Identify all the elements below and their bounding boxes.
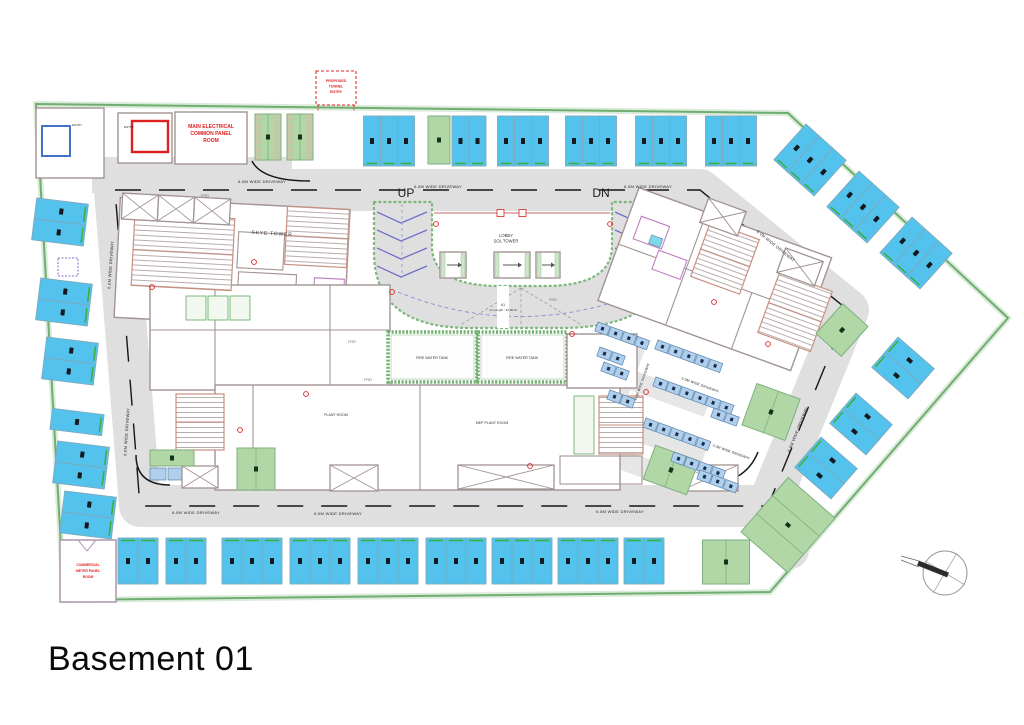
fire-tank-label: FIRE WATER TANK <box>506 356 539 360</box>
stall-number <box>338 558 342 564</box>
driveway-label: 6.0M WIDE DRIVEWAY <box>624 184 672 189</box>
stall-number <box>56 229 61 235</box>
stall-number <box>676 138 680 144</box>
parking-stall-group <box>830 393 892 455</box>
parking-stall-group <box>636 116 687 166</box>
svg-text:SOL TOWER: SOL TOWER <box>494 239 519 244</box>
stall-number <box>370 138 374 144</box>
tunnel-entry-label: PROPOSED <box>326 79 347 83</box>
stall-number <box>434 558 438 564</box>
parking-stall-group <box>364 116 415 166</box>
stall-number <box>194 558 198 564</box>
svg-text:ENTRY: ENTRY <box>330 90 343 94</box>
driveway-label-3m: 3.0M WIDE DRIVEWAY <box>712 443 751 460</box>
stall-number <box>75 419 80 425</box>
parking-stall-group <box>42 337 99 385</box>
stall-number <box>642 138 646 144</box>
stall-number <box>60 309 65 315</box>
frd-label: FRD <box>348 339 356 344</box>
stall-number <box>59 208 64 214</box>
parking-stall-group <box>774 124 846 196</box>
utility-box <box>58 258 78 276</box>
plant-room-label: PLANT ROOM <box>324 413 348 417</box>
stall-number <box>250 558 254 564</box>
north-arrow-icon <box>901 551 967 595</box>
void-box <box>458 465 554 489</box>
parking-stall-group <box>492 538 552 584</box>
ramp-dn-label: DN <box>592 186 609 200</box>
stall-number <box>170 456 174 461</box>
parking-stall-group <box>60 491 117 539</box>
stall-number <box>298 558 302 564</box>
frd-label: FRD <box>364 377 372 382</box>
stall-number <box>254 467 258 472</box>
stall-number <box>540 558 544 564</box>
stall-number <box>586 558 590 564</box>
stall-number <box>69 347 74 353</box>
driveway-label: 6.0M WIDE DRIVEWAY <box>314 511 362 516</box>
commercial-room-label: COMMERCIAL <box>76 563 99 567</box>
driveway-label: 6.0M WIDE DRIVEWAY <box>172 510 220 515</box>
stall-number <box>474 558 478 564</box>
void-box <box>193 197 230 225</box>
parking-stall-group <box>880 217 952 289</box>
parking-stall-group <box>566 116 617 166</box>
stall-number <box>84 522 89 528</box>
stall-number <box>66 368 71 374</box>
parking-stall-group <box>426 538 486 584</box>
parking-stall-group <box>118 538 158 584</box>
stall-number <box>270 558 274 564</box>
lobby-label: LOBBY <box>499 233 513 238</box>
plan-title: Basement 01 <box>48 640 254 679</box>
stall-number <box>746 138 750 144</box>
stall-number <box>318 558 322 564</box>
stall-number <box>521 138 525 144</box>
green-stall <box>255 114 281 160</box>
stall-number <box>606 558 610 564</box>
ramp-divider <box>497 286 509 328</box>
stall-number <box>454 558 458 564</box>
stall-number <box>386 558 390 564</box>
stall-number <box>266 135 270 140</box>
parking-stall-group <box>706 116 757 166</box>
stall-number <box>126 558 130 564</box>
parking-stall-group <box>32 198 89 246</box>
fire-extinguisher-marker <box>434 222 439 227</box>
panel-outline <box>132 121 168 152</box>
stall-number <box>63 288 68 294</box>
stall-number <box>437 138 441 143</box>
stair-core <box>285 206 350 267</box>
stall-number <box>589 138 593 144</box>
svg-text:ROOM: ROOM <box>203 138 219 144</box>
green-stall <box>703 540 750 584</box>
driveway-label: 6.0M WIDE DRIVEWAY <box>414 184 462 189</box>
stall-number <box>404 138 408 144</box>
green-stall <box>287 114 313 160</box>
stall-number <box>652 558 656 564</box>
ramp-up-label: UP <box>398 186 415 200</box>
floor-plan-page: PROPOSED TUNNEL ENTRY UP DN 6.0M WIDE DR… <box>0 0 1024 725</box>
parking-stall-group <box>50 408 104 435</box>
stall-number <box>538 138 542 144</box>
stall-number <box>77 472 82 478</box>
fire-tank-label: FIRE WATER TANK <box>416 356 449 360</box>
entry-label: ENTRY <box>72 123 82 127</box>
stair-core <box>176 394 224 450</box>
elevator-box <box>440 252 466 278</box>
stall-number <box>174 558 178 564</box>
svg-text:ROOM: ROOM <box>83 575 94 579</box>
parking-stall-group <box>222 538 282 584</box>
elevator-box <box>494 252 530 278</box>
green-stall <box>428 116 450 164</box>
svg-text:METER PANEL: METER PANEL <box>76 569 100 573</box>
stall-number <box>566 558 570 564</box>
driveway-label: 6.0M WIDE DRIVEWAY <box>596 509 644 514</box>
electrical-room-label: MAIN ELECTRICAL <box>188 124 234 130</box>
stall-number <box>724 560 728 565</box>
stall-number <box>712 138 716 144</box>
lobby-elevators <box>440 252 560 278</box>
stall-number <box>500 558 504 564</box>
stall-number <box>387 138 391 144</box>
stall-number <box>520 558 524 564</box>
stall-number <box>476 138 480 144</box>
parking-stall-group <box>358 538 418 584</box>
parking-stall-group <box>827 171 899 243</box>
stall-number <box>606 138 610 144</box>
parking-stall-group <box>558 538 618 584</box>
stall-number <box>230 558 234 564</box>
frd-label: FRD <box>549 297 557 302</box>
void-box <box>157 195 194 223</box>
stall-number <box>298 135 302 140</box>
stair-core <box>599 396 643 454</box>
driveway-label: 6.0M WIDE DRIVEWAY <box>238 179 286 184</box>
parking-stall-group <box>452 116 486 166</box>
entry-label: ENTRY <box>124 125 134 129</box>
stall-number <box>146 558 150 564</box>
corridor-block <box>150 285 390 390</box>
frd-label: FRD <box>201 193 209 198</box>
elevator-box <box>536 252 560 278</box>
void-box <box>182 466 218 488</box>
stall-number <box>504 138 508 144</box>
parking-stall-group <box>36 278 93 326</box>
ramp-id-label: A1 <box>501 303 505 307</box>
mep-room-label: MEP PLANT ROOM <box>476 421 508 425</box>
ramp-length-label: CL Length : 46.00 M <box>489 308 517 312</box>
green-stall <box>237 448 275 490</box>
bike-stall-row <box>655 340 723 373</box>
parking-stall-group <box>624 538 664 584</box>
stall-number <box>729 138 733 144</box>
stall-number <box>572 138 576 144</box>
parking-stall-group <box>53 441 110 489</box>
green-stall <box>150 450 194 466</box>
parking-stall-group <box>166 538 206 584</box>
parking-stall-group <box>872 337 934 399</box>
void-box <box>330 465 378 491</box>
parking-stall-group <box>498 116 549 166</box>
stall-number <box>632 558 636 564</box>
stall-number <box>80 451 85 457</box>
stall-number <box>87 501 92 507</box>
svg-text:TUNNEL: TUNNEL <box>329 85 344 89</box>
void-box <box>121 193 158 221</box>
floor-plan: PROPOSED TUNNEL ENTRY UP DN 6.0M WIDE DR… <box>0 0 1024 725</box>
stall-number <box>459 138 463 144</box>
fire-water-tanks <box>388 332 567 382</box>
stall-number <box>366 558 370 564</box>
stall-number <box>406 558 410 564</box>
parking-stall-group <box>290 538 350 584</box>
stall-number <box>659 138 663 144</box>
svg-text:COMMON PANEL: COMMON PANEL <box>190 131 231 137</box>
